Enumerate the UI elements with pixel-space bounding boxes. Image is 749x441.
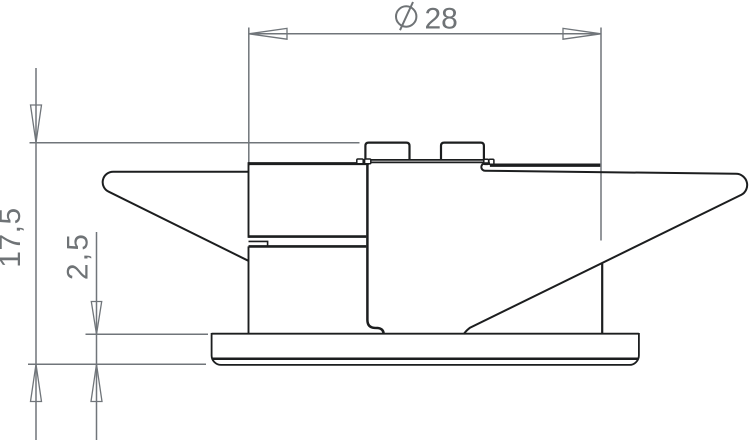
svg-text:17,5: 17,5 [0,207,27,267]
svg-text:2,5: 2,5 [62,232,95,280]
svg-text:28: 28 [425,2,458,35]
